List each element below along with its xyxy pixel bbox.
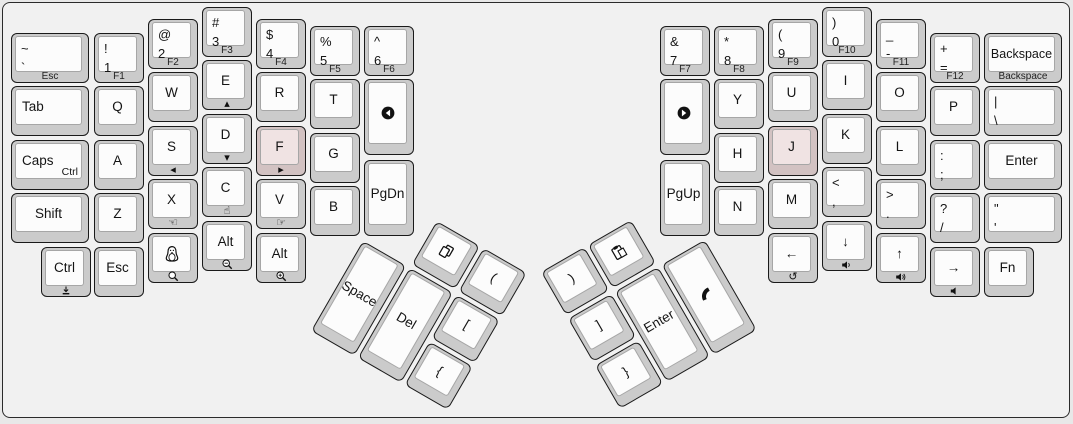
key-u[interactable]: U xyxy=(768,72,818,122)
key-front-label: F8 xyxy=(715,64,763,76)
keycap-surface: ( xyxy=(467,253,519,304)
keycap-surface: ) xyxy=(546,253,598,304)
keycap-surface: N xyxy=(718,189,757,225)
key-pgdn[interactable]: PgDn xyxy=(364,160,414,236)
keycap-surface: L xyxy=(880,129,919,165)
key-front-label: F9 xyxy=(769,57,817,69)
key-m[interactable]: M xyxy=(768,179,818,229)
key-arrow-right[interactable]: → xyxy=(930,247,980,297)
key-label: Z xyxy=(99,197,136,231)
keycap-surface: H xyxy=(718,136,757,172)
key-front-label: Esc xyxy=(12,71,88,83)
keycap-surface: K xyxy=(826,117,865,153)
keycap-surface: _ - xyxy=(880,22,919,58)
keycap-surface xyxy=(593,226,645,277)
key-label: Esc xyxy=(99,251,136,285)
key-2[interactable]: @ 2F2 xyxy=(148,19,198,69)
key-label: T xyxy=(315,83,352,117)
key-5[interactable]: % 5F5 xyxy=(310,26,360,76)
key-label: Fn xyxy=(989,251,1026,285)
keycap-surface: Y xyxy=(718,82,757,118)
key-k[interactable]: K xyxy=(822,114,872,164)
key-caps[interactable]: CapsCtrl xyxy=(11,140,89,190)
keycap-surface: Shift xyxy=(15,196,82,232)
search-icon xyxy=(149,269,197,284)
key-fn[interactable]: Fn xyxy=(984,247,1034,297)
key-shift-left[interactable]: Shift xyxy=(11,193,89,243)
key-label: ) xyxy=(547,254,596,302)
keycap-surface xyxy=(664,82,703,144)
key-label: Alt xyxy=(261,237,298,271)
keycap-surface: < , xyxy=(826,170,865,206)
key-label: W xyxy=(153,76,190,110)
key-label: → xyxy=(935,251,972,285)
keycap-surface: PgUp xyxy=(664,163,703,225)
keycap-surface: ( 9 xyxy=(772,22,811,58)
keycap-surface: | \ xyxy=(988,89,1055,125)
key-label: Tab xyxy=(16,90,81,124)
key-label: : ; xyxy=(940,146,944,184)
key-3[interactable]: # 3F3 xyxy=(202,7,252,57)
volume-mute-icon xyxy=(931,283,979,298)
undo-icon: ↺ xyxy=(769,269,817,284)
keycap-surface: PgDn xyxy=(368,163,407,225)
keycap-surface: G xyxy=(314,136,353,172)
key-arrow-down[interactable]: ↓ xyxy=(822,221,872,271)
hand-up-icon: ☝ xyxy=(203,203,251,218)
keycap-surface: Ctrl xyxy=(45,250,84,286)
key-grave[interactable]: ~ `Esc xyxy=(11,33,89,83)
keycap-surface: Q xyxy=(98,89,137,125)
key-x[interactable]: X☜ xyxy=(148,179,198,229)
key-slash[interactable]: ? / xyxy=(930,193,980,243)
key-media-next[interactable] xyxy=(660,79,710,155)
triangle-up-icon: ▴ xyxy=(203,96,251,111)
keyboard: ~ `EscTabCapsCtrlShiftCtrl! 1F1QAZEsc@ 2… xyxy=(0,0,1073,424)
keycap-surface: * 8 xyxy=(718,29,757,65)
circle-arrow-right-icon xyxy=(665,83,702,143)
key-front-label: F7 xyxy=(661,64,709,76)
key-label: Ctrl xyxy=(46,251,83,285)
key-label: X xyxy=(153,183,190,217)
key-label: } xyxy=(601,348,650,396)
key-label: H xyxy=(719,137,756,171)
keycap-surface: ) 0 xyxy=(826,10,865,46)
key-label: J xyxy=(773,130,810,164)
key-w[interactable]: W xyxy=(148,72,198,122)
key-label: Enter xyxy=(989,144,1054,178)
keycap-surface: V xyxy=(260,182,299,218)
key-label: E xyxy=(207,64,244,98)
key-a[interactable]: A xyxy=(94,140,144,190)
circle-arrow-left-icon xyxy=(369,83,406,143)
triangle-left-icon: ◂ xyxy=(149,162,197,177)
key-4[interactable]: $ 4F4 xyxy=(256,19,306,69)
key-period[interactable]: > . xyxy=(876,179,926,229)
key-label: Y xyxy=(719,83,756,117)
key-front-label: F12 xyxy=(931,71,979,83)
key-enter-right[interactable]: Enter xyxy=(984,140,1062,190)
key-label: O xyxy=(881,76,918,110)
key-alt-left-1[interactable]: Alt xyxy=(202,221,252,271)
key-label: D xyxy=(207,118,244,152)
key-label: U xyxy=(773,76,810,110)
key-q[interactable]: Q xyxy=(94,86,144,136)
keycap-surface: $ 4 xyxy=(260,22,299,58)
key-label: V xyxy=(261,183,298,217)
triangle-right-icon: ▸ xyxy=(257,162,305,177)
key-label: < , xyxy=(832,173,840,211)
keycap-surface: Fn xyxy=(988,250,1027,286)
keycap-surface: ? / xyxy=(934,196,973,232)
key-label: PgDn xyxy=(369,164,406,224)
keycap-surface: + = xyxy=(934,36,973,72)
keycap-surface: Alt xyxy=(206,224,245,260)
copy-icon xyxy=(422,227,471,275)
key-6[interactable]: ^ 6F6 xyxy=(364,26,414,76)
key-label: ↓ xyxy=(827,225,864,259)
hand-left-icon: ☜ xyxy=(149,215,197,230)
key-label: > . xyxy=(886,185,894,223)
keycap-surface: ] xyxy=(573,300,625,351)
key-label: F xyxy=(261,130,298,164)
keycap-surface: Z xyxy=(98,196,137,232)
keycap-surface: { xyxy=(413,346,465,397)
key-label: C xyxy=(207,171,244,205)
keycap-surface: " ' xyxy=(988,196,1055,232)
key-front-label: F10 xyxy=(823,45,871,57)
keycap-surface: > . xyxy=(880,182,919,218)
key-front-label: F5 xyxy=(311,64,359,76)
key-p[interactable]: P xyxy=(930,86,980,136)
keycap-surface: E xyxy=(206,63,245,99)
key-label: Q xyxy=(99,90,136,124)
key-y[interactable]: Y xyxy=(714,79,764,129)
keycap-surface: X xyxy=(152,182,191,218)
key-label: ( xyxy=(469,254,518,302)
key-super-tux[interactable] xyxy=(148,233,198,283)
key-front-label: F4 xyxy=(257,57,305,69)
key-o[interactable]: O xyxy=(876,72,926,122)
keycap-surface: CapsCtrl xyxy=(15,143,82,179)
keycap-surface: @ 2 xyxy=(152,22,191,58)
key-9[interactable]: ( 9F9 xyxy=(768,19,818,69)
key-label: | \ xyxy=(994,92,998,130)
key-label: B xyxy=(315,190,352,224)
key-label: L xyxy=(881,130,918,164)
key-label: ↑ xyxy=(881,237,918,271)
key-z[interactable]: Z xyxy=(94,193,144,243)
key-label: R xyxy=(261,76,298,110)
key-label: { xyxy=(415,347,464,395)
key-esc-bottom[interactable]: Esc xyxy=(94,247,144,297)
key-label: N xyxy=(719,190,756,224)
key-minus[interactable]: _ -F11 xyxy=(876,19,926,69)
keycap-surface: Backspace xyxy=(988,36,1055,72)
key-label: ? / xyxy=(940,199,947,237)
key-front-label: Backspace xyxy=(985,71,1061,83)
key-d[interactable]: D▾ xyxy=(202,114,252,164)
key-label: G xyxy=(315,137,352,171)
paste-icon xyxy=(594,227,643,275)
key-front-label: F6 xyxy=(365,64,413,76)
keycap-surface: % 5 xyxy=(314,29,353,65)
keycap-surface xyxy=(421,226,473,277)
key-corner-label: Ctrl xyxy=(62,167,78,178)
keycap-surface: R xyxy=(260,75,299,111)
keycap-surface: T xyxy=(314,82,353,118)
keycap-surface: U xyxy=(772,75,811,111)
key-tab[interactable]: Tab xyxy=(11,86,89,136)
key-label: A xyxy=(99,144,136,178)
keycap-surface: & 7 xyxy=(664,29,703,65)
key-pgup[interactable]: PgUp xyxy=(660,160,710,236)
keycap-surface: O xyxy=(880,75,919,111)
keycap-surface: A xyxy=(98,143,137,179)
keycap-surface: M xyxy=(772,182,811,218)
key-h[interactable]: H xyxy=(714,133,764,183)
keycap-surface: ~ ` xyxy=(15,36,82,72)
keycap-surface: W xyxy=(152,75,191,111)
keycap-surface: Enter xyxy=(988,143,1055,179)
key-0[interactable]: ) 0F10 xyxy=(822,7,872,57)
key-label: [ xyxy=(442,301,491,349)
keycap-surface: Tab xyxy=(15,89,82,125)
keycap-surface: ^ 6 xyxy=(368,29,407,65)
key-label: M xyxy=(773,183,810,217)
key-7[interactable]: & 7F7 xyxy=(660,26,710,76)
keycap-surface: S xyxy=(152,129,191,165)
key-label: " ' xyxy=(994,199,999,237)
key-label: Shift xyxy=(16,197,81,231)
keycap-surface: Alt xyxy=(260,236,299,272)
key-label: P xyxy=(935,90,972,124)
key-quote[interactable]: " ' xyxy=(984,193,1062,243)
key-1[interactable]: ! 1F1 xyxy=(94,33,144,83)
key-equals[interactable]: + =F12 xyxy=(930,33,980,83)
key-label: Backspace xyxy=(989,37,1054,71)
keycap-surface: P xyxy=(934,89,973,125)
key-front-label: F11 xyxy=(877,57,925,69)
key-label: ] xyxy=(574,301,623,349)
keycap-surface: C xyxy=(206,170,245,206)
keycap-surface: ↓ xyxy=(826,224,865,260)
hand-right-icon: ☞ xyxy=(257,215,305,230)
key-alt-left-2[interactable]: Alt xyxy=(256,233,306,283)
key-e[interactable]: E▴ xyxy=(202,60,252,110)
key-front-label: F2 xyxy=(149,57,197,69)
keycap-surface xyxy=(368,82,407,144)
keycap-surface: I xyxy=(826,63,865,99)
key-ctrl-bottom[interactable]: Ctrl xyxy=(41,247,91,297)
keycap-surface: → xyxy=(934,250,973,286)
key-label: PgUp xyxy=(665,164,702,224)
keycap-surface: } xyxy=(600,347,652,398)
key-8[interactable]: * 8F8 xyxy=(714,26,764,76)
key-l[interactable]: L xyxy=(876,126,926,176)
key-front-label: F1 xyxy=(95,71,143,83)
key-backslash[interactable]: | \ xyxy=(984,86,1062,136)
triangle-down-icon: ▾ xyxy=(203,150,251,165)
key-f[interactable]: F▸ xyxy=(256,126,306,176)
key-label: K xyxy=(827,118,864,152)
key-front-label: F3 xyxy=(203,45,251,57)
keycap-surface: Esc xyxy=(98,250,137,286)
keycap-surface: J xyxy=(772,129,811,165)
keycap-surface: ← xyxy=(772,236,811,272)
key-c[interactable]: C☝ xyxy=(202,167,252,217)
key-arrow-left[interactable]: ←↺ xyxy=(768,233,818,283)
keycap-surface: # 3 xyxy=(206,10,245,46)
key-b[interactable]: B xyxy=(310,186,360,236)
keycap-surface xyxy=(152,236,191,272)
keycap-surface: B xyxy=(314,189,353,225)
key-label: I xyxy=(827,64,864,98)
download-icon xyxy=(42,283,90,298)
key-g[interactable]: G xyxy=(310,133,360,183)
search-minus-icon xyxy=(203,257,251,272)
keycap-surface: F xyxy=(260,129,299,165)
key-label: S xyxy=(153,130,190,164)
key-t[interactable]: T xyxy=(310,79,360,129)
key-backspace[interactable]: BackspaceBackspace xyxy=(984,33,1062,83)
key-semicolon[interactable]: : ; xyxy=(930,140,980,190)
keycap-surface: [ xyxy=(440,299,492,350)
keycap-surface: ↑ xyxy=(880,236,919,272)
volume-up-icon xyxy=(877,269,925,284)
key-comma[interactable]: < , xyxy=(822,167,872,217)
key-media-prev[interactable] xyxy=(364,79,414,155)
key-v[interactable]: V☞ xyxy=(256,179,306,229)
key-label: Alt xyxy=(207,225,244,259)
penguin-icon xyxy=(153,237,190,271)
key-r[interactable]: R xyxy=(256,72,306,122)
keycap-surface: D xyxy=(206,117,245,153)
keycap-surface: ! 1 xyxy=(98,36,137,72)
key-s[interactable]: S◂ xyxy=(148,126,198,176)
key-n[interactable]: N xyxy=(714,186,764,236)
search-plus-icon xyxy=(257,269,305,284)
key-i[interactable]: I xyxy=(822,60,872,110)
volume-down-icon xyxy=(823,257,871,272)
key-arrow-up[interactable]: ↑ xyxy=(876,233,926,283)
key-label: ← xyxy=(773,237,810,271)
key-j[interactable]: J xyxy=(768,126,818,176)
keycap-surface: : ; xyxy=(934,143,973,179)
